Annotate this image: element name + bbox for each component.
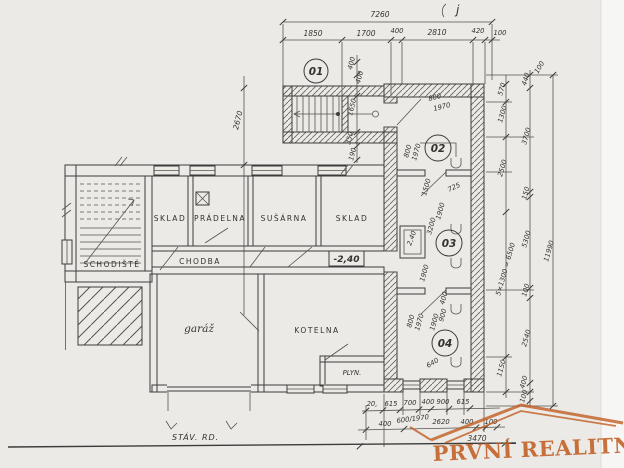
dim-bottom-r1c: 700	[404, 399, 417, 407]
dim-top-seg-5: 100	[494, 29, 507, 37]
dim-bottom-r2a: 400	[379, 420, 392, 428]
room-label-pradelna: PRÁDELNA	[194, 214, 246, 223]
svg-text:04: 04	[438, 338, 453, 350]
dim-bottom-r1e: 900	[437, 398, 450, 406]
svg-text:01: 01	[309, 66, 324, 78]
floor-plan-drawing: 7260 1850 1700 400 2810 420 100 j 2670 4…	[0, 0, 624, 468]
dim-bottom-r1a: 20,	[367, 400, 378, 408]
baseline-label: STÁV. RD.	[172, 431, 219, 442]
dim-bottom-r1d: 400	[422, 398, 435, 406]
level-value: -2,40	[334, 255, 360, 265]
dim-top-seg-4: 420	[472, 27, 485, 35]
svg-text:03: 03	[442, 238, 457, 250]
room-label-susarna: SUŠÁRNA	[261, 214, 308, 223]
room-label-sklad1: SKLAD	[154, 214, 186, 223]
hatched-terrace	[78, 287, 142, 345]
svg-text:02: 02	[431, 143, 446, 155]
dim-bottom-r1b: 615	[385, 400, 398, 408]
room-label-sklad2: SKLAD	[336, 214, 368, 223]
room-label-chodba: CHODBA	[179, 257, 221, 266]
dim-top-total: 7260	[370, 10, 389, 19]
room-label-kotelna: KOTELNA	[294, 326, 339, 335]
dim-top-seg-1: 1700	[356, 29, 375, 38]
dim-top-seg-0: 1850	[303, 29, 322, 38]
floor-plan-scan: 7260 1850 1700 400 2810 420 100 j 2670 4…	[0, 0, 624, 468]
dim-bottom-r1f: 615	[457, 398, 470, 406]
room-label-garaz: garáž	[184, 322, 214, 335]
room-label-schodiste: SCHODIŠTĚ	[83, 260, 140, 269]
room-label-plyn: PLYN.	[343, 369, 362, 377]
dim-top-seg-2: 400	[391, 27, 404, 35]
level-badge: -2,40	[329, 251, 364, 266]
dim-top-seg-3: 2810	[427, 28, 446, 37]
scan-edge-strip	[601, 0, 624, 468]
dim-bottom-r2b: 2620	[432, 418, 449, 426]
